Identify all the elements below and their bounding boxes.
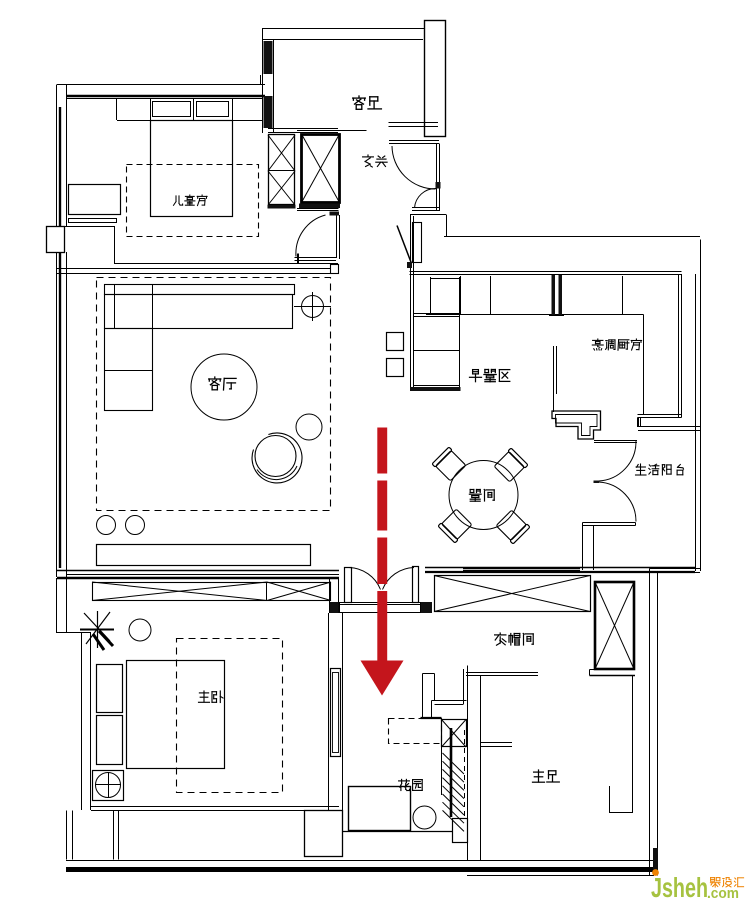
svg-text:Jsheh: Jsheh <box>651 872 708 900</box>
svg-text:.com: .com <box>707 886 739 900</box>
